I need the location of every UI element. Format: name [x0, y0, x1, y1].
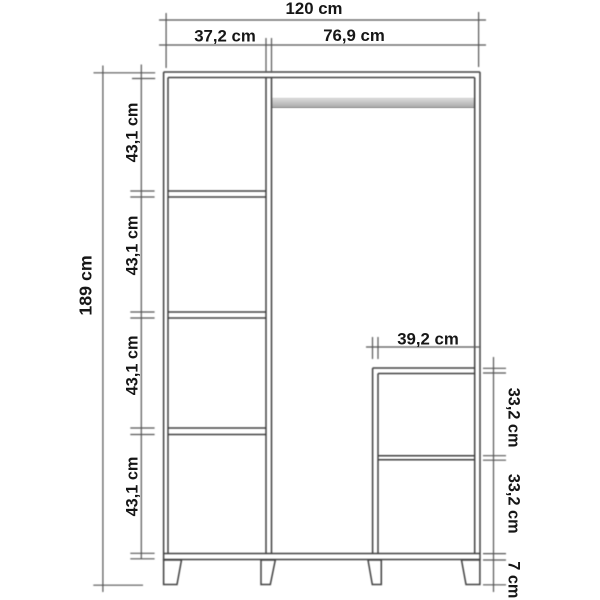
- svg-text:7 cm: 7 cm: [505, 561, 523, 598]
- svg-text:37,2 cm: 37,2 cm: [194, 27, 256, 46]
- svg-text:33,2 cm: 33,2 cm: [505, 474, 523, 534]
- svg-text:120 cm: 120 cm: [286, 0, 343, 18]
- svg-text:33,2 cm: 33,2 cm: [505, 388, 523, 448]
- svg-text:43,1 cm: 43,1 cm: [123, 216, 141, 276]
- svg-text:39,2 cm: 39,2 cm: [397, 330, 459, 349]
- svg-text:43,1 cm: 43,1 cm: [123, 457, 141, 517]
- svg-text:76,9 cm: 76,9 cm: [323, 26, 385, 45]
- svg-text:43,1 cm: 43,1 cm: [123, 336, 141, 396]
- svg-text:189 cm: 189 cm: [76, 255, 96, 315]
- svg-text:43,1 cm: 43,1 cm: [123, 103, 141, 163]
